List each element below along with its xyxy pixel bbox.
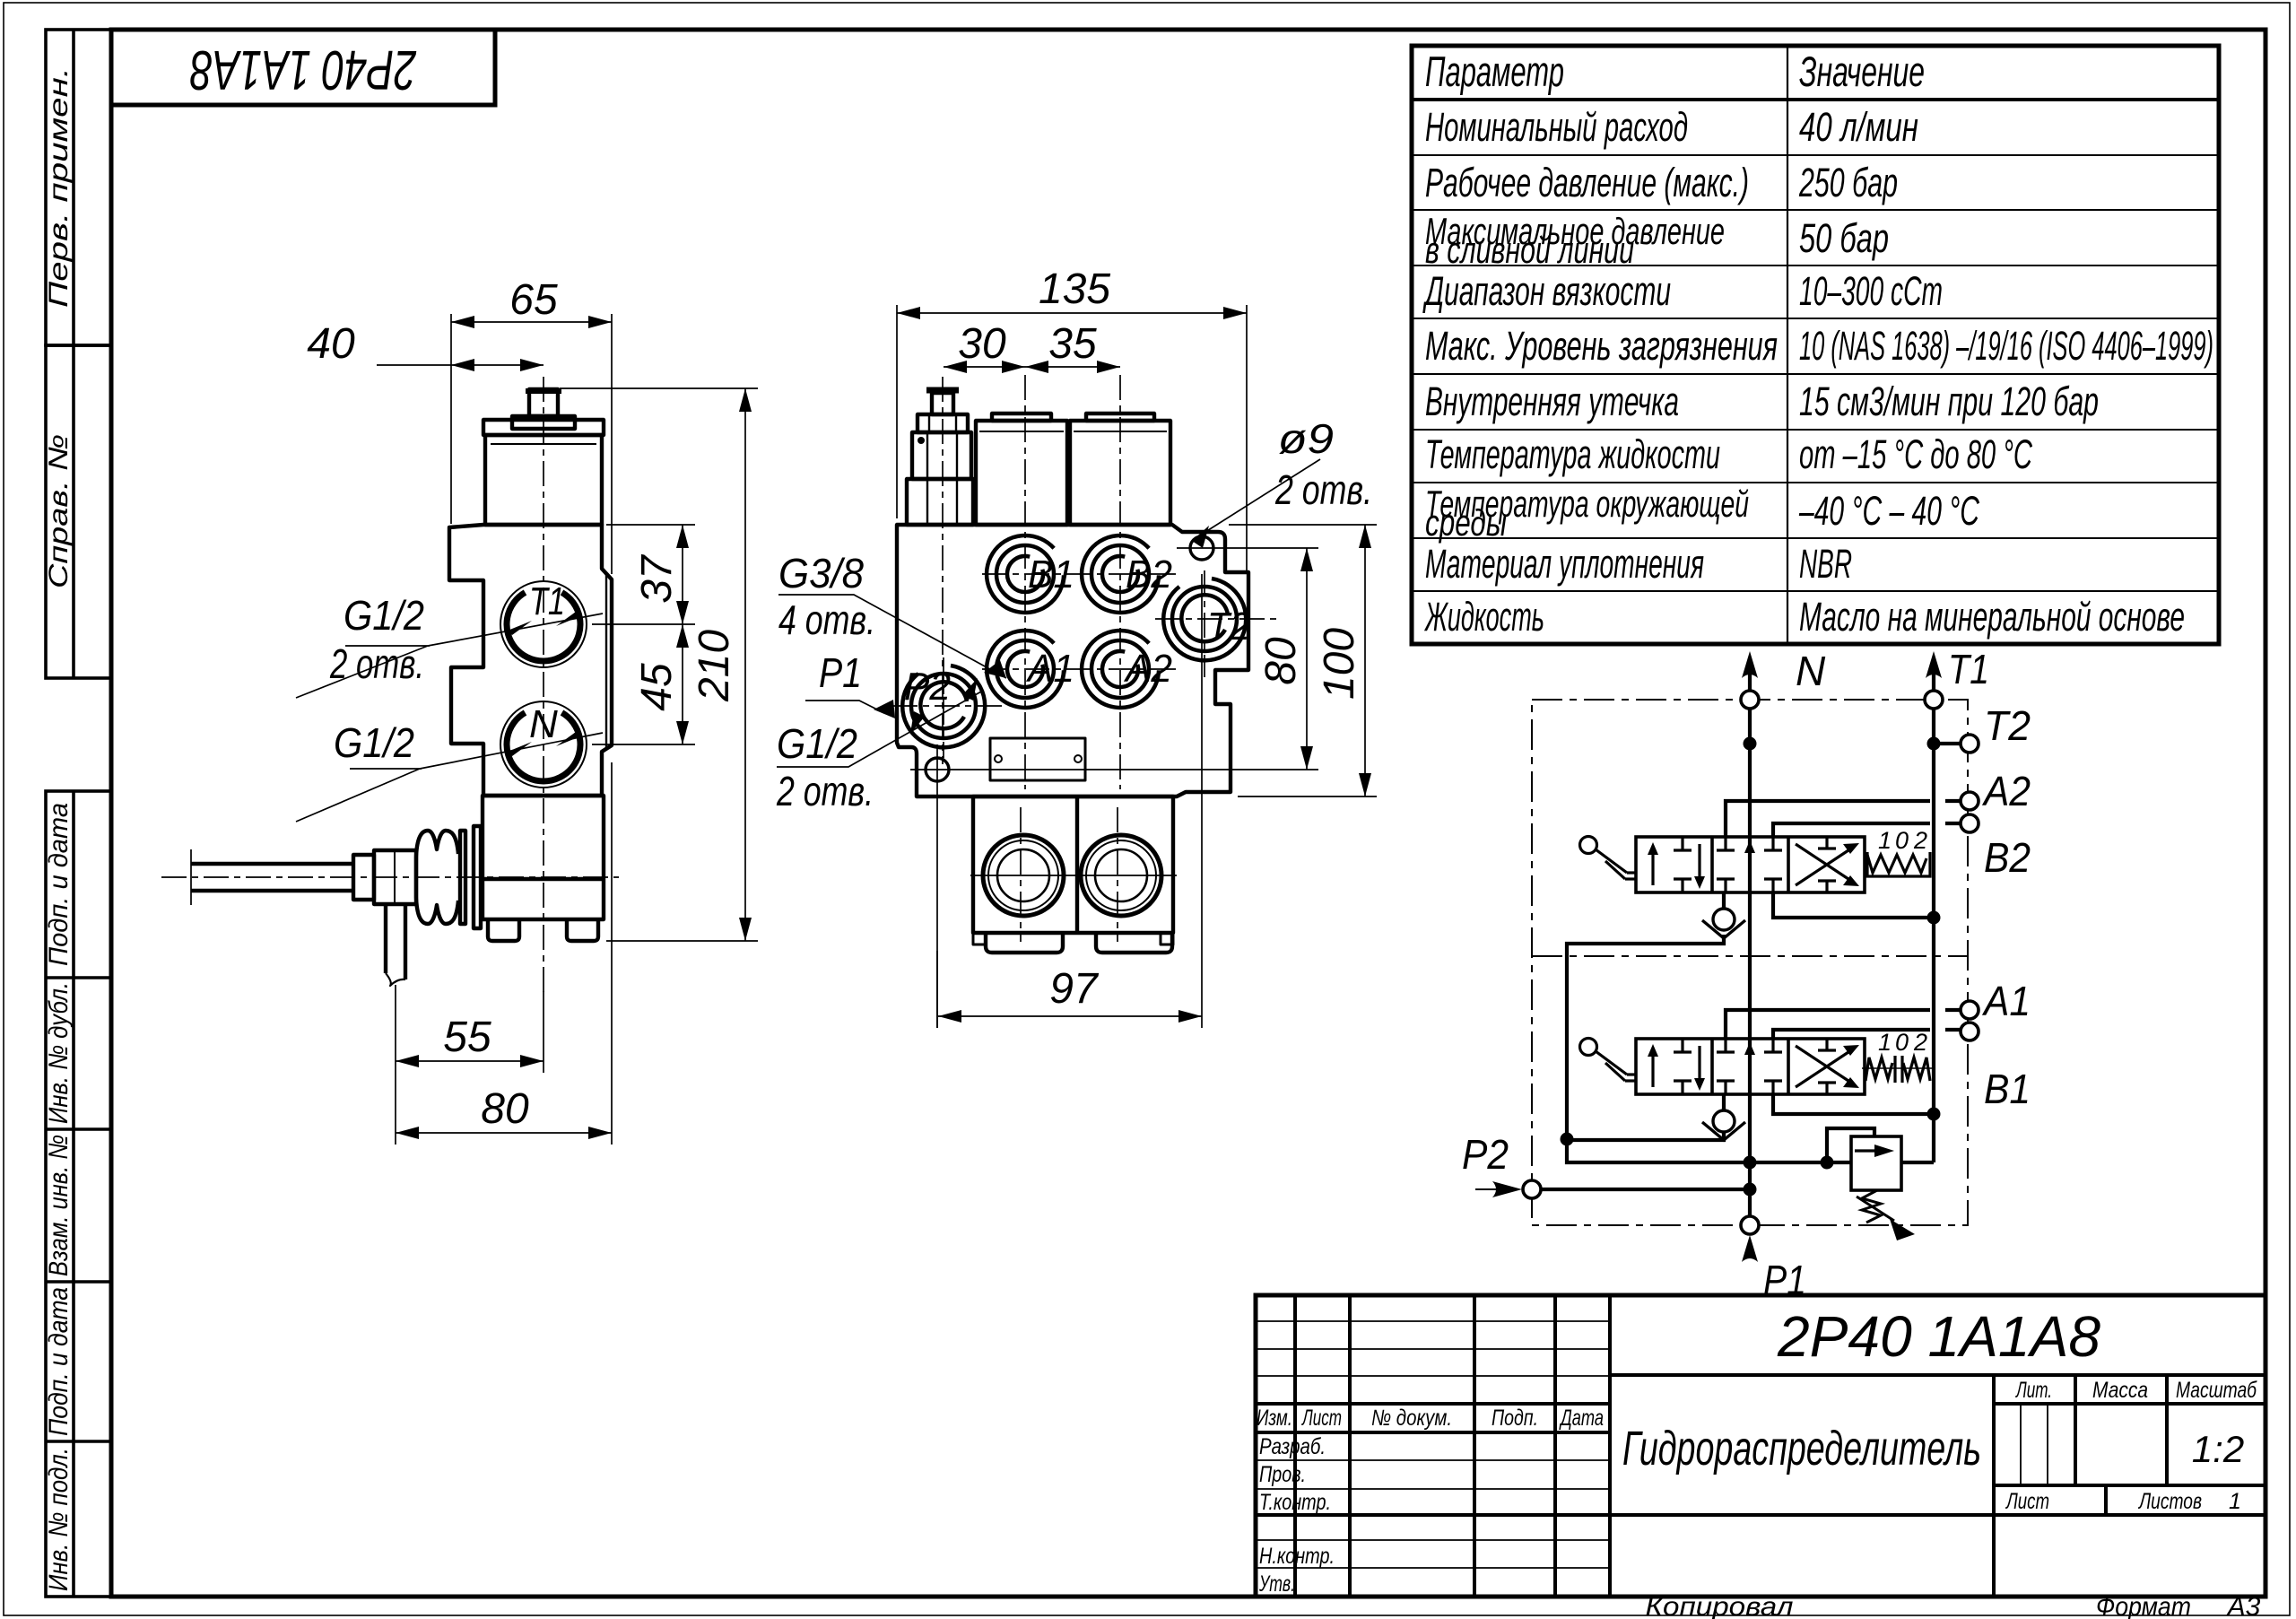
svg-text:35: 35 (1048, 320, 1097, 368)
svg-text:среды: среды (1425, 501, 1507, 544)
svg-text:Копировал: Копировал (1646, 1592, 1794, 1619)
svg-text:Масса: Масса (2092, 1378, 2148, 1403)
svg-text:Подп. и дата: Подп. и дата (44, 803, 74, 966)
svg-text:2 отв.: 2 отв. (776, 768, 874, 814)
svg-text:Рабочее давление (макс.): Рабочее давление (макс.) (1425, 160, 1749, 205)
svg-text:N: N (529, 702, 558, 746)
svg-text:Формат: Формат (2096, 1592, 2191, 1619)
svg-text:от –15 °С до 80 °С: от –15 °С до 80 °С (1799, 431, 2032, 477)
svg-text:45: 45 (633, 663, 681, 711)
svg-text:15 см3/мин при 120 бар: 15 см3/мин при 120 бар (1799, 379, 2099, 424)
svg-text:4 отв.: 4 отв. (778, 596, 875, 643)
svg-text:N: N (1796, 648, 1826, 694)
svg-text:Гидрораспределитель: Гидрораспределитель (1622, 1422, 1981, 1475)
svg-text:T1: T1 (1948, 646, 1989, 692)
svg-text:Т2: Т2 (1207, 605, 1250, 648)
svg-text:Параметр: Параметр (1425, 48, 1564, 95)
svg-text:1: 1 (2229, 1489, 2241, 1514)
svg-text:NBR: NBR (1799, 541, 1852, 587)
svg-text:Разраб.: Разраб. (1259, 1434, 1326, 1459)
svg-text:А3: А3 (2226, 1592, 2261, 1619)
svg-text:1: 1 (1878, 827, 1892, 854)
svg-text:A2: A2 (1123, 647, 1172, 691)
svg-text:Т.контр.: Т.контр. (1259, 1490, 1331, 1515)
svg-text:B1: B1 (1984, 1066, 2031, 1112)
svg-text:P1: P1 (819, 649, 862, 696)
svg-text:1:2: 1:2 (2192, 1428, 2244, 1470)
svg-text:G1/2: G1/2 (334, 719, 414, 766)
svg-text:10 (NAS 1638) –/19/16 (ISO 440: 10 (NAS 1638) –/19/16 (ISO 4406–1999) (1799, 323, 2213, 369)
svg-text:Диапазон вязкости: Диапазон вязкости (1422, 268, 1671, 314)
svg-text:Подп.: Подп. (1492, 1406, 1538, 1431)
svg-text:A1: A1 (1981, 978, 2031, 1024)
svg-text:80: 80 (1257, 637, 1305, 685)
svg-text:Справ. №: Справ. № (44, 434, 74, 588)
svg-text:Пров.: Пров. (1259, 1462, 1306, 1487)
svg-text:Перв. примен.: Перв. примен. (44, 67, 74, 308)
svg-text:Внутренняя утечка: Внутренняя утечка (1425, 379, 1679, 424)
svg-text:Инв. № подл.: Инв. № подл. (44, 1448, 74, 1591)
svg-text:Н.контр.: Н.контр. (1259, 1544, 1335, 1569)
svg-text:Значение: Значение (1799, 48, 1925, 95)
svg-text:135: 135 (1039, 265, 1110, 313)
svg-text:1: 1 (1878, 1029, 1892, 1056)
svg-text:A2: A2 (1981, 768, 2031, 814)
svg-text:№ докум.: № докум. (1371, 1406, 1452, 1431)
svg-text:10–300 сСт: 10–300 сСт (1799, 268, 1943, 314)
svg-text:в сливной линии: в сливной линии (1425, 229, 1634, 271)
svg-text:Дата: Дата (1559, 1406, 1604, 1431)
svg-text:Утв.: Утв. (1258, 1571, 1295, 1597)
svg-text:Т1: Т1 (529, 579, 565, 623)
svg-text:B1: B1 (1028, 553, 1074, 596)
svg-text:Материал уплотнения: Материал уплотнения (1425, 541, 1704, 587)
svg-text:Номинальный расход: Номинальный расход (1425, 104, 1688, 150)
svg-text:T2: T2 (1984, 702, 2031, 749)
svg-text:80: 80 (481, 1085, 529, 1133)
svg-text:Лист: Лист (1301, 1406, 1342, 1431)
svg-text:Листов: Листов (2137, 1489, 2202, 1514)
svg-text:100: 100 (1316, 628, 1363, 700)
svg-text:Взам. инв. №: Взам. инв. № (44, 1135, 74, 1276)
svg-text:250 бар: 250 бар (1798, 160, 1898, 205)
svg-text:Лист: Лист (2005, 1489, 2049, 1514)
svg-text:0: 0 (1895, 1029, 1909, 1056)
svg-text:Жидкость: Жидкость (1424, 594, 1544, 640)
svg-text:2 отв.: 2 отв. (1274, 466, 1372, 513)
svg-text:37: 37 (633, 553, 681, 604)
svg-text:97: 97 (1049, 965, 1100, 1013)
svg-text:Температура жидкости: Температура жидкости (1425, 431, 1720, 477)
svg-text:G1/2: G1/2 (344, 592, 424, 639)
svg-text:P2: P2 (904, 665, 951, 709)
svg-text:2Р40 1А1А8: 2Р40 1А1А8 (1777, 1304, 2100, 1369)
svg-text:2: 2 (1913, 1029, 1927, 1056)
svg-text:P1: P1 (1763, 1257, 1806, 1303)
svg-text:B2: B2 (1984, 834, 2031, 881)
svg-text:40 л/мин: 40 л/мин (1799, 104, 1918, 150)
svg-text:Изм.: Изм. (1257, 1406, 1292, 1431)
svg-text:Масло на минеральной основе: Масло на минеральной основе (1799, 594, 2185, 640)
svg-text:2Р40 1А1А8: 2Р40 1А1А8 (190, 39, 417, 100)
svg-text:65: 65 (509, 276, 558, 324)
svg-text:50 бар: 50 бар (1799, 215, 1889, 261)
svg-text:Лит.: Лит. (2015, 1378, 2052, 1403)
svg-text:B2: B2 (1126, 553, 1172, 596)
svg-text:P2: P2 (1462, 1131, 1509, 1178)
svg-text:G1/2: G1/2 (777, 720, 857, 767)
svg-text:Макс. Уровень загрязнения: Макс. Уровень загрязнения (1425, 323, 1778, 369)
svg-text:2 отв.: 2 отв. (329, 640, 424, 687)
svg-text:Масштаб: Масштаб (2176, 1378, 2257, 1403)
svg-text:A1: A1 (1025, 647, 1074, 691)
svg-text:–40 °С – 40 °С: –40 °С – 40 °С (1798, 488, 1979, 534)
svg-text:30: 30 (958, 320, 1006, 368)
svg-text:0: 0 (1895, 827, 1909, 854)
svg-text:2: 2 (1913, 827, 1927, 854)
svg-text:40: 40 (307, 320, 355, 368)
svg-text:G3/8: G3/8 (778, 550, 864, 596)
svg-text:55: 55 (443, 1014, 491, 1061)
svg-text:ø9: ø9 (1278, 415, 1334, 462)
svg-text:Инв. № дубл.: Инв. № дубл. (44, 982, 74, 1124)
svg-text:210: 210 (691, 630, 738, 702)
svg-text:Подп. и дата: Подп. и дата (44, 1287, 74, 1436)
